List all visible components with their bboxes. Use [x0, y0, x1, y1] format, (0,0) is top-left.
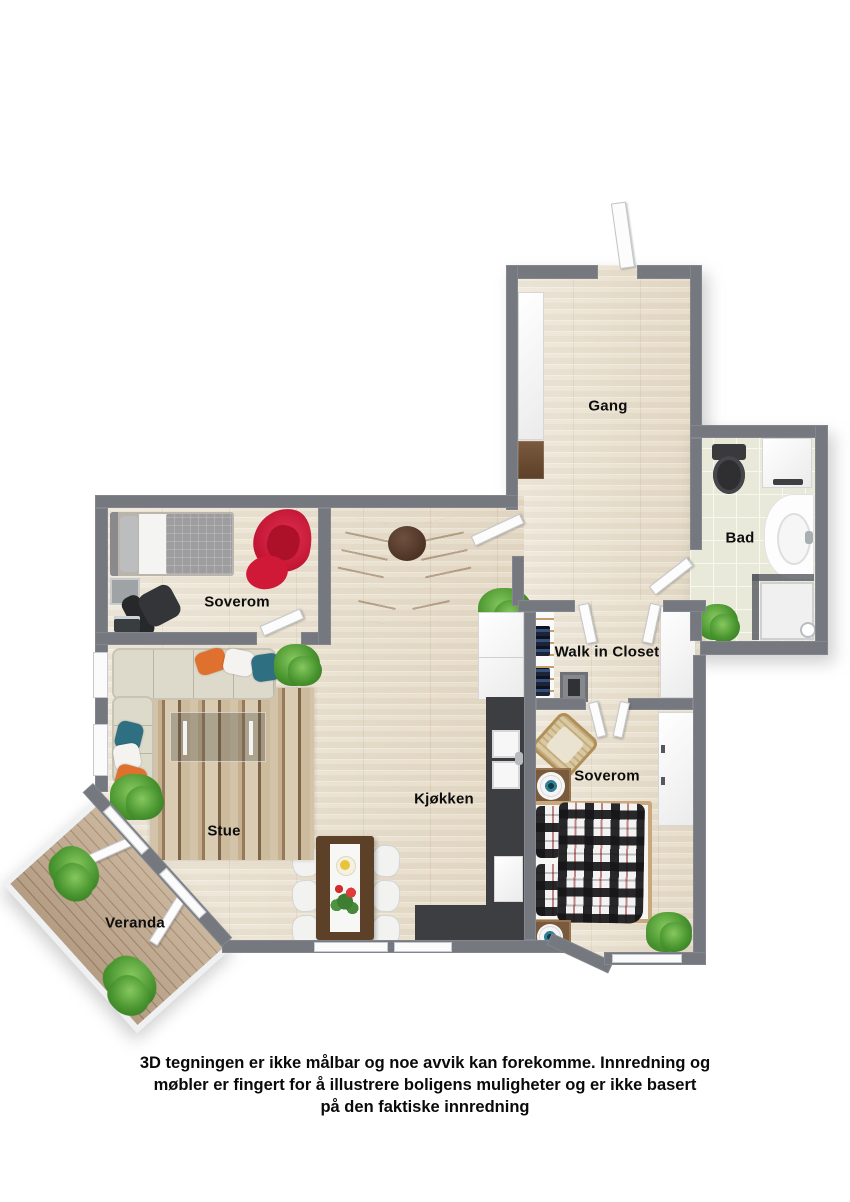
- wall-gang-top-left: [506, 265, 598, 279]
- disclaimer-line-3: på den faktiske innredning: [0, 1096, 850, 1118]
- fruit-plate: [336, 856, 356, 876]
- wall-sov1-right: [318, 508, 331, 645]
- bottom-window-2: [394, 942, 452, 952]
- wall-bottom-main: [222, 940, 562, 953]
- wall-closet-top-a: [518, 600, 575, 612]
- room-label-soverom-2: Soverom: [574, 768, 640, 785]
- room-label-kjokken: Kjøkken: [414, 791, 474, 808]
- wall-gang-bad-upper: [690, 438, 702, 550]
- wall-gang-left: [506, 265, 518, 510]
- shower-tray: [760, 582, 814, 640]
- wall-gang-left-lower: [512, 556, 524, 606]
- wall-closet-bed-a: [536, 698, 586, 710]
- bath-vanity: [764, 494, 814, 580]
- faucet: [805, 531, 813, 544]
- dining-chair: [371, 844, 401, 878]
- dining-table: [316, 836, 374, 940]
- bedroom2-window: [612, 954, 682, 963]
- room-label-gang: Gang: [588, 398, 627, 415]
- entry-door: [611, 202, 635, 269]
- bed2-blanket: [557, 802, 645, 923]
- bed2-pillow-1: [536, 806, 560, 858]
- wall-closet-bed-b: [628, 698, 693, 710]
- dining-chair: [371, 879, 401, 913]
- gang-dresser: [518, 441, 544, 479]
- room-label-stue: Stue: [207, 823, 240, 840]
- wall-right-outer: [693, 655, 706, 953]
- wall-closet-top-b: [663, 600, 706, 612]
- room-label-veranda: Veranda: [105, 915, 165, 932]
- fridge-cabinet: [478, 612, 524, 700]
- side-table: [388, 526, 426, 561]
- shower-head: [800, 622, 816, 638]
- bed1-pillow: [120, 516, 138, 572]
- wall-bad-top: [690, 425, 828, 438]
- bed1-blanket: [166, 514, 232, 574]
- wall-kitchen-divider: [524, 612, 536, 940]
- bedroom2-wardrobe: [658, 712, 696, 826]
- wall-bad-right: [815, 425, 828, 655]
- glass-coffee-table: [170, 712, 266, 762]
- floor-plan: Gang Bad Soverom Walk in Closet Soverom …: [0, 0, 850, 1202]
- toilet-bowl: [713, 456, 745, 494]
- kitchen-faucet: [515, 752, 523, 765]
- disclaimer: 3D tegningen er ikke målbar og noe avvik…: [0, 1052, 850, 1118]
- washing-machine: [762, 438, 812, 488]
- stue-window-1: [93, 652, 108, 698]
- room-label-soverom-1: Soverom: [204, 594, 270, 611]
- bed1-sheet: [139, 514, 167, 574]
- wall-sov1-bottom-a: [95, 632, 257, 645]
- wall-gang-right: [690, 265, 702, 438]
- wall-left-top: [95, 495, 518, 508]
- wall-bad-bottom: [700, 641, 828, 655]
- appliance-front: [494, 856, 523, 902]
- room-label-bad: Bad: [726, 530, 755, 547]
- speaker-top: [537, 772, 565, 800]
- kitchen-counter-bottom: [415, 905, 524, 943]
- bottom-window-1: [314, 942, 388, 952]
- bed1-headboard: [110, 512, 118, 576]
- stue-window-2: [93, 724, 108, 776]
- shower-glass-left: [752, 574, 759, 640]
- gang-wardrobe: [518, 292, 544, 440]
- room-label-walk-in-closet: Walk in Closet: [555, 644, 660, 661]
- disclaimer-line-2: møbler er fingert for å illustrere bolig…: [0, 1074, 850, 1096]
- laptop: [114, 616, 140, 632]
- shower-glass-top: [752, 574, 814, 581]
- flower-bouquet: [330, 880, 360, 916]
- sink-basin-2: [492, 761, 520, 789]
- disclaimer-line-1: 3D tegningen er ikke målbar og noe avvik…: [0, 1052, 850, 1074]
